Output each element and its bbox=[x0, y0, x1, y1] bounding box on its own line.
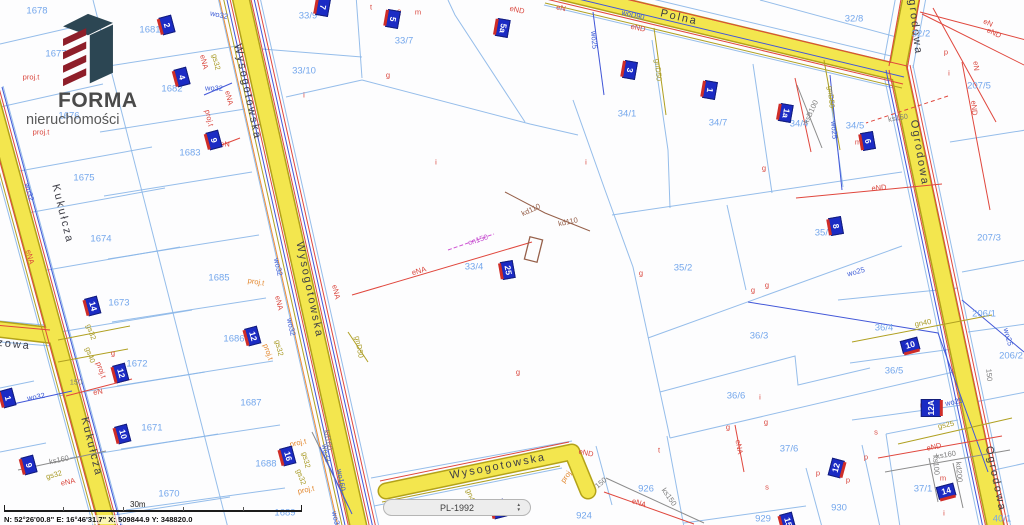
address-marker-number: 9 bbox=[209, 137, 218, 144]
street-name-label: Wysogotowska bbox=[231, 43, 262, 141]
utility-label: proj.t bbox=[262, 343, 275, 361]
utility-label: wo32 bbox=[330, 510, 341, 525]
address-marker[interactable]: 1 bbox=[702, 80, 718, 100]
address-marker-number: 10 bbox=[904, 340, 915, 351]
utility-label: eND bbox=[509, 5, 525, 15]
utility-label: wo32 bbox=[205, 84, 223, 92]
utility-label: eNA bbox=[631, 497, 647, 509]
utility-label: i bbox=[943, 509, 945, 517]
utility-label: eN bbox=[93, 387, 104, 396]
utility-label: eN bbox=[556, 3, 567, 12]
utility-label: p bbox=[944, 48, 948, 56]
address-marker[interactable]: 5 bbox=[385, 9, 401, 29]
address-marker[interactable]: 8 bbox=[828, 216, 844, 236]
parcel-number-label: 1675 bbox=[73, 173, 94, 183]
utility-label: p bbox=[816, 469, 820, 477]
address-marker[interactable]: 7 bbox=[315, 0, 331, 17]
scale-bar bbox=[4, 510, 302, 512]
address-marker[interactable]: 5a bbox=[495, 18, 511, 38]
parcel-number-label: 1688 bbox=[255, 459, 276, 469]
address-marker-number: 12 bbox=[116, 367, 127, 378]
parcel-number-label: 926 bbox=[638, 484, 654, 494]
utility-label: g bbox=[639, 269, 643, 277]
utility-label: eND bbox=[630, 23, 646, 33]
address-marker[interactable]: 12 bbox=[827, 458, 845, 479]
parcel-number-label: 206/2 bbox=[999, 351, 1023, 361]
utility-label: eNA bbox=[274, 295, 285, 311]
utility-label: g bbox=[764, 418, 768, 426]
scale-label: 30m bbox=[130, 500, 146, 509]
utility-label: s bbox=[765, 483, 769, 491]
utility-label: eNA bbox=[199, 54, 210, 70]
street-name-label: Ogrodowa bbox=[983, 445, 1008, 513]
utility-label: eN bbox=[972, 61, 980, 71]
parcel-number-label: 1670 bbox=[158, 489, 179, 499]
utility-label: wo32 bbox=[27, 392, 46, 403]
scale-tick-left bbox=[4, 505, 5, 511]
utility-label: wo32 bbox=[209, 9, 228, 20]
utility-label: gs32 bbox=[301, 451, 312, 469]
parcel-number-label: 32/2 bbox=[912, 29, 931, 39]
parcel-number-label: 33/7 bbox=[395, 36, 414, 46]
map-overlay: WysogotowskaWysogotowskaKukułczaKukułcza… bbox=[0, 0, 1024, 525]
utility-label: ks100 bbox=[931, 455, 940, 476]
address-marker-number: 4 bbox=[177, 74, 186, 81]
parcel-number-label: 1681 bbox=[139, 25, 160, 35]
map-viewport[interactable]: WysogotowskaWysogotowskaKukułczaKukułcza… bbox=[0, 0, 1024, 525]
utility-label: t bbox=[658, 446, 660, 454]
parcel-number-label: 1685 bbox=[208, 273, 229, 283]
parcel-number-label: 35/2 bbox=[674, 263, 693, 273]
utility-label: g bbox=[386, 71, 390, 79]
utility-label: i bbox=[435, 158, 437, 166]
utility-label: s bbox=[874, 428, 878, 436]
parcel-number-label: 34/5 bbox=[846, 121, 865, 131]
utility-label: kd110 bbox=[557, 216, 578, 227]
address-marker[interactable]: 9 bbox=[20, 455, 37, 476]
parcel-number-label: 33/10 bbox=[292, 66, 316, 76]
utility-label: gs25 bbox=[937, 420, 954, 431]
address-marker[interactable]: 15 bbox=[779, 512, 797, 525]
utility-label: gs40 bbox=[84, 346, 97, 364]
utility-label: proj.t bbox=[297, 485, 315, 496]
utility-label: gnD50 bbox=[653, 59, 662, 82]
utility-label: proj bbox=[559, 470, 572, 485]
parcel-number-label: 32/8 bbox=[845, 14, 864, 24]
parcel-number-label: 1686 bbox=[223, 334, 244, 344]
parcel-number-label: 37/6 bbox=[780, 444, 799, 454]
address-marker-number: 16 bbox=[283, 450, 294, 461]
utility-label: g bbox=[726, 423, 730, 431]
address-marker[interactable]: 12A bbox=[921, 399, 941, 417]
utility-label: wo25 bbox=[829, 121, 838, 140]
utility-label: wo25 bbox=[589, 31, 598, 50]
utility-label: cn150 bbox=[467, 233, 489, 246]
parcel-number-label: 207/5 bbox=[967, 81, 991, 91]
utility-label: i bbox=[948, 69, 950, 77]
utility-label: ks150 bbox=[660, 487, 678, 508]
crs-value: PL-1992 bbox=[440, 503, 474, 513]
utility-label: eND bbox=[578, 448, 594, 458]
address-marker-number: 3 bbox=[625, 67, 634, 73]
utility-label: g bbox=[111, 349, 115, 357]
utility-label: m bbox=[940, 474, 946, 482]
street-name-label: Kukułcza bbox=[78, 416, 103, 478]
utility-label: eNA bbox=[224, 90, 235, 106]
parcel-number-label: 33/4 bbox=[465, 262, 484, 272]
utility-label: gn40 bbox=[914, 318, 932, 328]
utility-label: g bbox=[751, 286, 755, 294]
address-marker-number: 15 bbox=[783, 516, 794, 525]
forma-building-icon bbox=[60, 5, 116, 87]
utility-label: eNA bbox=[60, 477, 76, 487]
parcel-number-label: 930 bbox=[831, 503, 847, 513]
address-marker-number: 5a bbox=[498, 23, 508, 34]
utility-label: kd160 bbox=[323, 429, 334, 450]
utility-label: gnD50 bbox=[826, 86, 835, 109]
utility-label: gnD50 bbox=[353, 335, 364, 358]
utility-label: proj.t bbox=[33, 128, 50, 136]
utility-label: 150 bbox=[70, 378, 83, 386]
parcel-number-label: 37/1 bbox=[914, 484, 933, 494]
address-marker-number: 12 bbox=[831, 462, 842, 473]
parcel-number-label: 1671 bbox=[141, 423, 162, 433]
utility-label: proj.t bbox=[23, 73, 40, 81]
utility-label: 150 bbox=[594, 476, 608, 490]
street-name-label: Wysogotowska bbox=[449, 452, 547, 481]
utility-label: i bbox=[585, 158, 587, 166]
address-marker[interactable]: 2 bbox=[158, 15, 175, 36]
address-marker[interactable]: 16 bbox=[279, 446, 297, 467]
address-marker-number: 14 bbox=[88, 300, 99, 311]
logo-subtitle: nieruchomości bbox=[26, 112, 120, 128]
utility-label: i bbox=[303, 91, 305, 99]
parcel-number-label: 1678 bbox=[26, 6, 47, 16]
utility-label: g bbox=[762, 164, 766, 172]
address-marker-number: 8 bbox=[831, 223, 840, 229]
parcel-number-label: 1672 bbox=[126, 359, 147, 369]
parcel-number-label: 34/7 bbox=[709, 118, 728, 128]
stepper-icon[interactable]: ▲▼ bbox=[517, 502, 521, 512]
utility-label: p bbox=[846, 476, 850, 484]
address-marker[interactable]: 12 bbox=[244, 326, 262, 347]
parcel-number-label: 1674 bbox=[90, 234, 111, 244]
street-name-label: Wysogotowska bbox=[293, 241, 324, 339]
utility-label: eNA bbox=[25, 249, 36, 265]
parcel-number-label: 36/4 bbox=[875, 323, 894, 333]
utility-label: kd110 bbox=[520, 202, 541, 217]
utility-label: wo32 bbox=[272, 257, 283, 276]
utility-label: gs32 bbox=[211, 53, 222, 71]
address-marker-number: 14 bbox=[940, 486, 951, 497]
address-marker-number: 12 bbox=[248, 330, 259, 341]
coordinates-readout: N: 52°26'00.8" E: 16°46'31.7" X: 509844.… bbox=[2, 515, 194, 524]
utility-label: wo25 bbox=[944, 396, 963, 407]
street-name-label: Ogrodowa bbox=[908, 119, 930, 187]
parcel-number-label: 36/6 bbox=[727, 391, 746, 401]
utility-label: wo25 bbox=[846, 266, 865, 278]
utility-label: proj.t bbox=[247, 277, 265, 287]
utility-label: woD90 bbox=[621, 9, 645, 22]
crs-selector[interactable]: PL-1992 ▲▼ bbox=[383, 499, 531, 516]
utility-label: t bbox=[370, 3, 372, 11]
address-marker-number: 10 bbox=[118, 428, 129, 439]
street-name-label: Polna bbox=[659, 8, 699, 27]
address-marker[interactable]: 10 bbox=[900, 336, 921, 354]
utility-label: gs32 bbox=[295, 468, 308, 486]
utility-label: wo32 bbox=[285, 317, 296, 336]
parcel-number-label: 1687 bbox=[240, 398, 261, 408]
utility-label: eND bbox=[970, 100, 979, 116]
parcel-number-label: 36/3 bbox=[750, 331, 769, 341]
address-marker-number: 1a bbox=[781, 108, 791, 119]
street-name-label: zowa bbox=[0, 338, 31, 352]
street-name-label: Kukułcza bbox=[49, 183, 74, 245]
parcel-number-label: 34/1 bbox=[618, 109, 637, 119]
utility-label: eND bbox=[871, 184, 887, 193]
address-marker-number: 1 bbox=[705, 87, 714, 93]
utility-label: g bbox=[765, 281, 769, 289]
address-marker-number: 7 bbox=[318, 4, 327, 10]
utility-label: proj.t bbox=[95, 361, 108, 379]
utility-label: g bbox=[516, 368, 520, 376]
utility-label: proj.t bbox=[203, 109, 214, 127]
parcel-number-label: 929 bbox=[755, 514, 771, 524]
utility-label: i bbox=[759, 393, 761, 401]
utility-label: eNA bbox=[734, 439, 744, 455]
utility-label: p bbox=[864, 453, 868, 461]
address-marker[interactable]: 14 bbox=[936, 482, 957, 500]
address-marker-number: 25 bbox=[503, 265, 513, 276]
utility-label: wo32 bbox=[23, 182, 35, 201]
parcel-number-label: 206/1 bbox=[972, 309, 996, 319]
address-marker[interactable]: 9 bbox=[205, 130, 222, 151]
utility-label: wo160 bbox=[335, 468, 346, 491]
parcel-number-label: 924 bbox=[576, 511, 592, 521]
scale-tick-right bbox=[301, 505, 302, 511]
address-marker[interactable]: 4 bbox=[173, 67, 190, 88]
parcel-number-label: 36/5 bbox=[885, 366, 904, 376]
address-marker-number: 6 bbox=[863, 138, 872, 144]
utility-label: eND bbox=[986, 26, 1003, 39]
address-marker[interactable]: 10 bbox=[114, 424, 132, 445]
address-marker-number: 12A bbox=[927, 400, 936, 416]
parcel-number-label: 1683 bbox=[179, 148, 200, 158]
utility-label: ks150 bbox=[887, 113, 908, 124]
utility-label: eNA bbox=[331, 284, 342, 300]
utility-label: gs32 bbox=[274, 339, 285, 357]
utility-label: ks160 bbox=[48, 454, 69, 465]
address-marker-number: 9 bbox=[24, 462, 33, 469]
parcel-number-label: 207/3 bbox=[977, 233, 1001, 243]
address-marker[interactable]: 25 bbox=[500, 260, 516, 280]
address-marker[interactable]: 1 bbox=[0, 388, 17, 409]
logo-title: FORMA bbox=[58, 89, 138, 113]
address-marker[interactable]: 6 bbox=[860, 131, 876, 151]
address-marker-number: 1 bbox=[3, 395, 12, 402]
address-marker[interactable]: 14 bbox=[84, 296, 102, 317]
utility-label: ksB100 bbox=[802, 99, 819, 125]
utility-label: wo25 bbox=[1002, 327, 1014, 346]
parcel-number-label: 40/1 bbox=[993, 514, 1012, 524]
utility-label: gs32 bbox=[85, 323, 98, 341]
address-marker-number: 5 bbox=[388, 16, 397, 22]
utility-label: eNA bbox=[411, 265, 427, 276]
utility-label: kd200 bbox=[954, 461, 963, 482]
utility-label: m bbox=[415, 8, 421, 16]
parcel-number-label: 1673 bbox=[108, 298, 129, 308]
address-marker-number: 2 bbox=[162, 22, 171, 29]
address-marker[interactable]: 3 bbox=[622, 60, 638, 80]
utility-label: 150 bbox=[985, 368, 994, 381]
